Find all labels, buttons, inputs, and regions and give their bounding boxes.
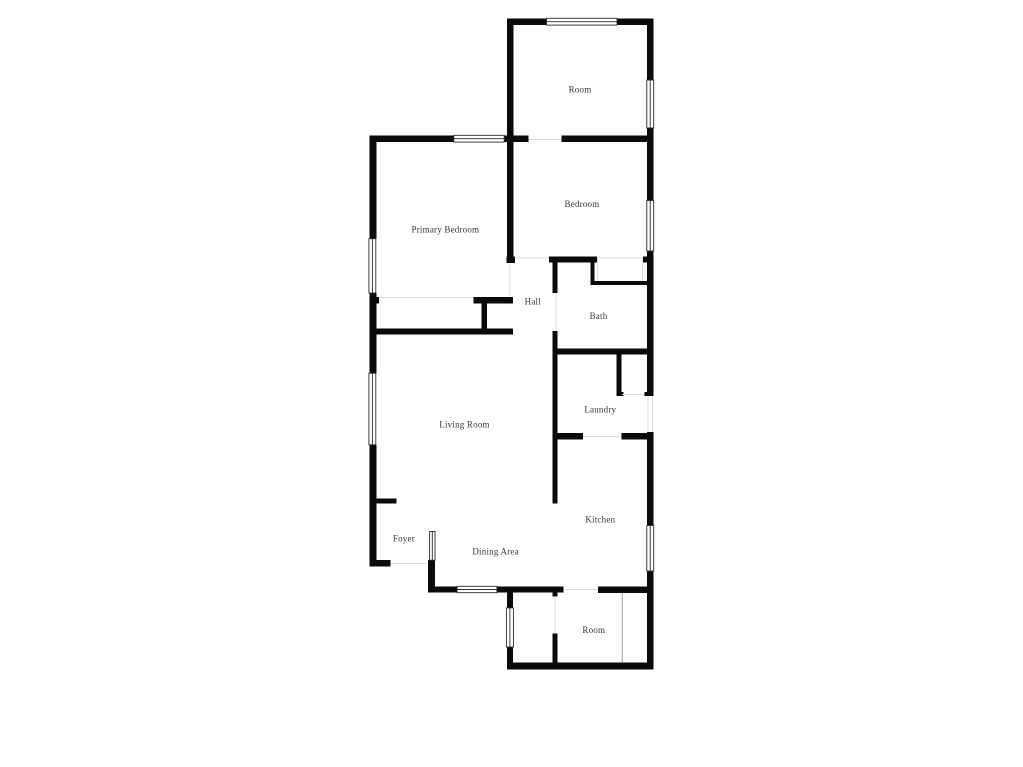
svg-text:Living Room: Living Room (439, 419, 489, 429)
svg-text:Laundry: Laundry (584, 405, 616, 415)
svg-text:Primary Bedroom: Primary Bedroom (412, 225, 480, 235)
svg-text:Dining Area: Dining Area (472, 547, 518, 557)
svg-text:Bedroom: Bedroom (565, 199, 600, 209)
svg-text:Kitchen: Kitchen (585, 514, 615, 524)
svg-text:Room: Room (582, 625, 605, 635)
svg-text:Hall: Hall (525, 296, 542, 306)
svg-text:Bath: Bath (590, 311, 608, 321)
svg-text:Foyer: Foyer (393, 534, 415, 544)
svg-text:Room: Room (569, 85, 592, 95)
